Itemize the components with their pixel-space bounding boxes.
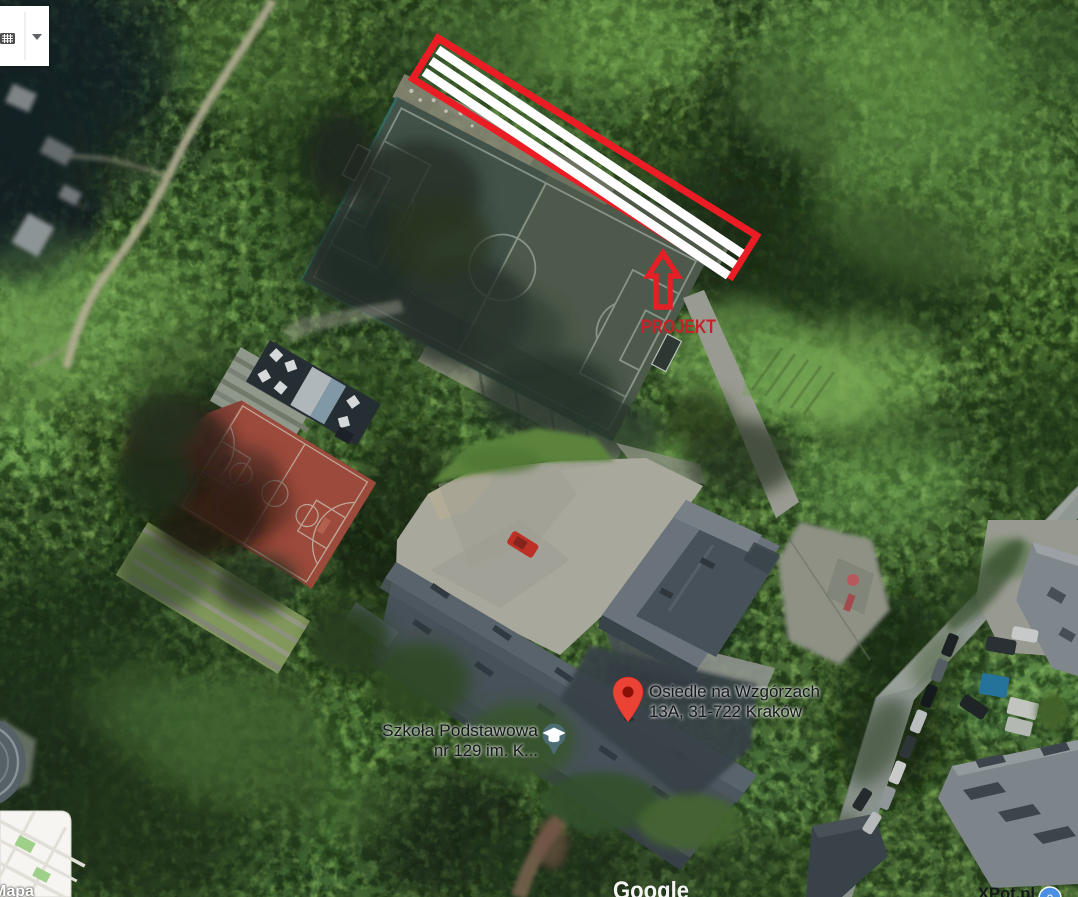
svg-text:Osiedle na Wzgórzach: Osiedle na Wzgórzach bbox=[649, 683, 820, 701]
svg-text:nr 129 im. K...: nr 129 im. K... bbox=[434, 742, 538, 760]
svg-text:XPot.pl: XPot.pl bbox=[978, 884, 1035, 897]
svg-text:0: 0 bbox=[1047, 892, 1054, 897]
svg-text:13A, 31-722 Kraków: 13A, 31-722 Kraków bbox=[649, 703, 802, 721]
svg-text:Szkoła Podstawowa: Szkoła Podstawowa bbox=[382, 722, 539, 740]
svg-text:PROJEKT: PROJEKT bbox=[641, 317, 716, 338]
svg-text:Mapa: Mapa bbox=[0, 883, 34, 897]
svg-text:Google: Google bbox=[613, 877, 689, 897]
